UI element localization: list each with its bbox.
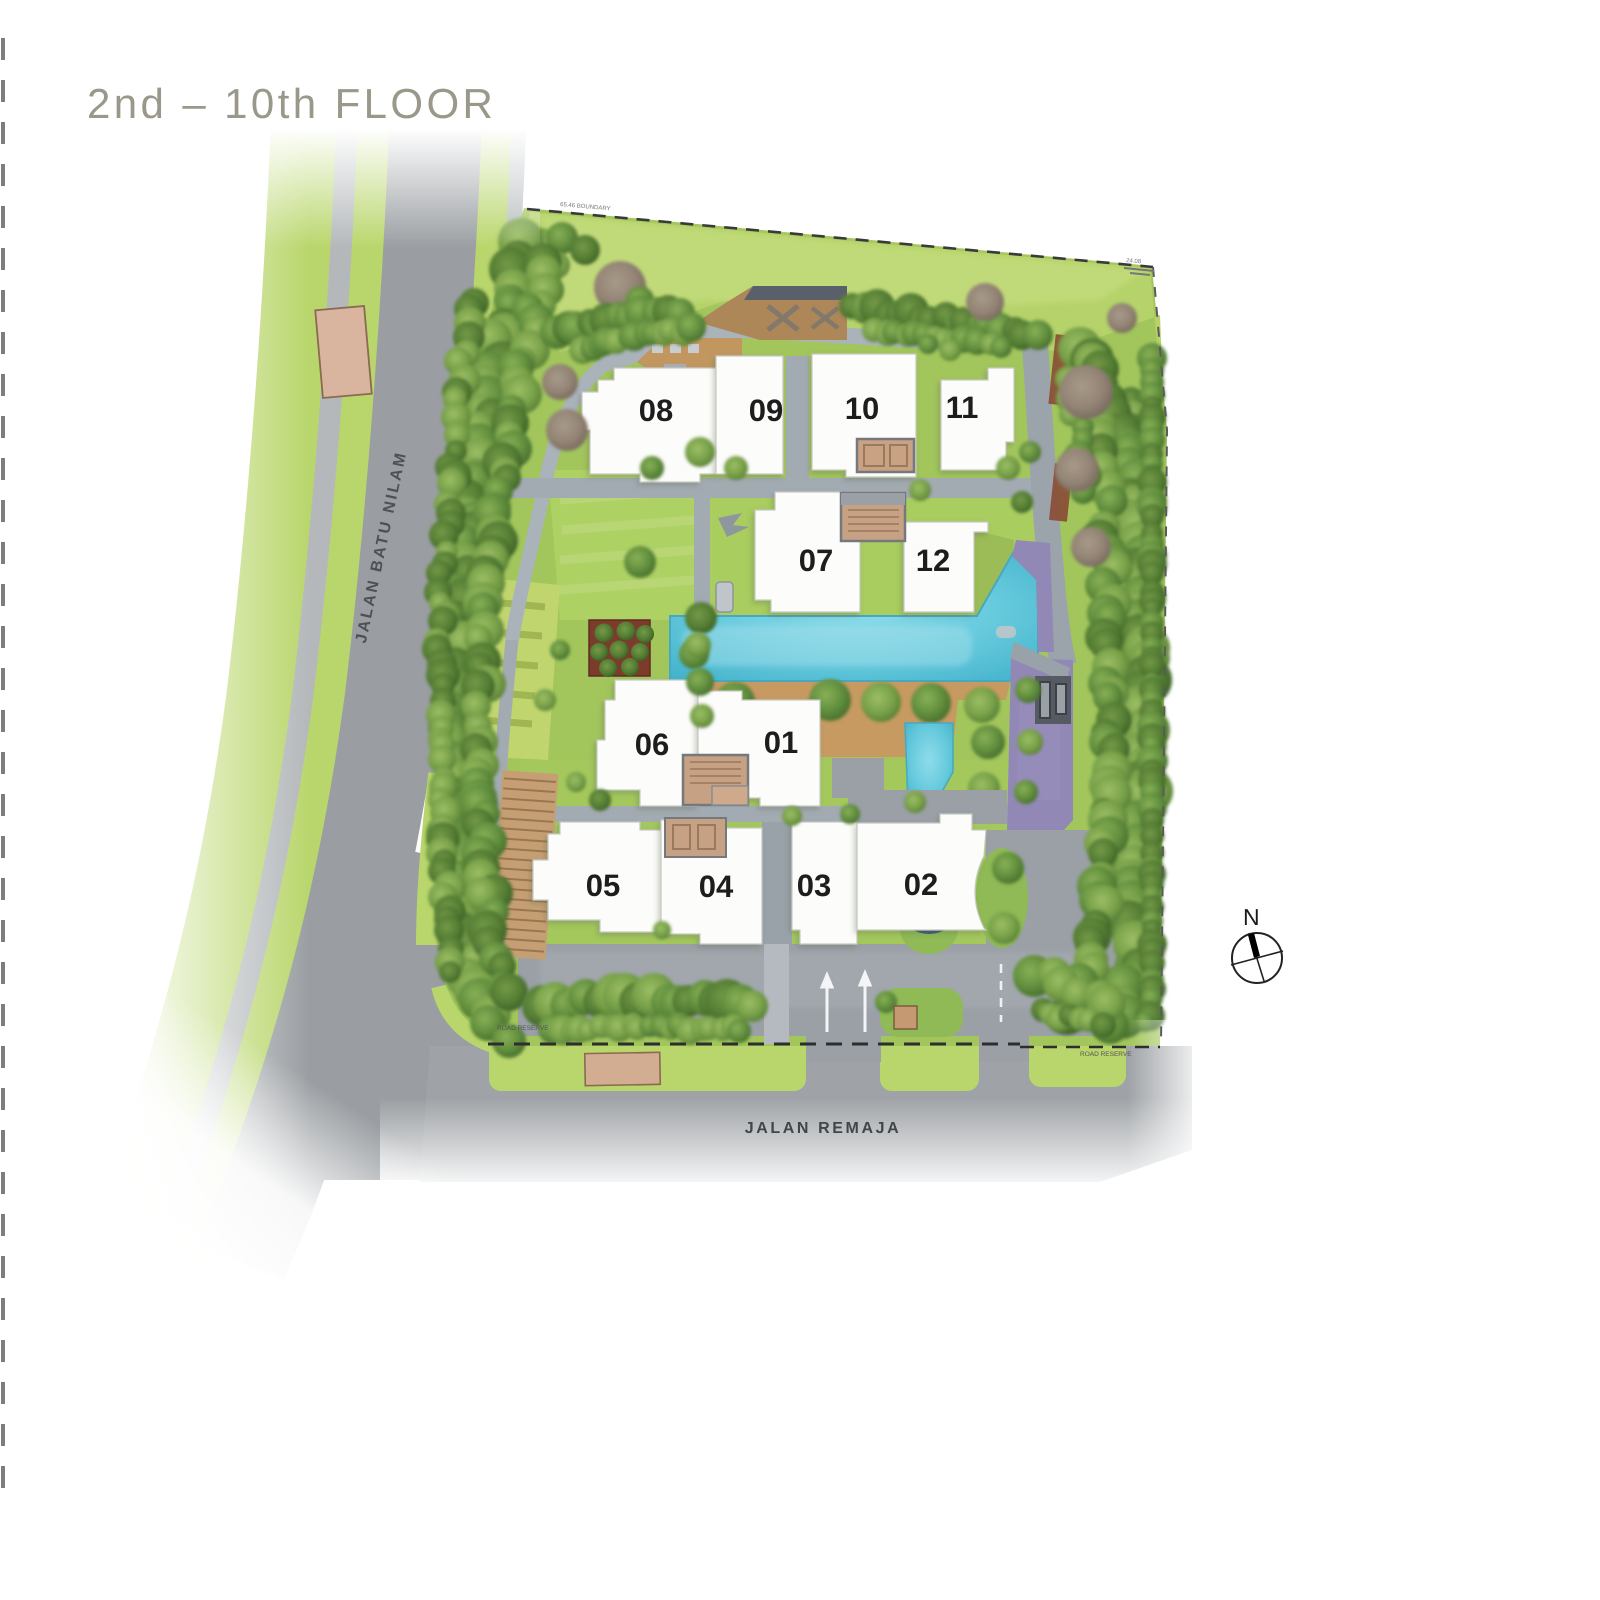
svg-text:24.08: 24.08 [1126, 257, 1142, 265]
svg-text:11: 11 [946, 390, 979, 425]
svg-text:05: 05 [586, 868, 620, 903]
svg-text:02: 02 [904, 867, 938, 902]
svg-text:08: 08 [639, 393, 673, 428]
svg-text:12: 12 [916, 543, 950, 578]
svg-text:07: 07 [799, 543, 833, 578]
svg-text:JALAN REMAJA: JALAN REMAJA [745, 1120, 902, 1137]
svg-text:06: 06 [635, 727, 669, 762]
svg-text:2nd – 10th FLOOR: 2nd – 10th FLOOR [87, 80, 496, 127]
svg-text:10: 10 [845, 391, 879, 426]
svg-text:ROAD RESERVE: ROAD RESERVE [1080, 1051, 1132, 1058]
svg-text:N: N [1243, 904, 1260, 930]
svg-text:03: 03 [797, 868, 831, 903]
svg-text:01: 01 [764, 725, 798, 760]
svg-text:04: 04 [699, 869, 734, 904]
svg-text:ROAD RESERVE: ROAD RESERVE [497, 1025, 549, 1032]
svg-text:09: 09 [749, 393, 783, 428]
